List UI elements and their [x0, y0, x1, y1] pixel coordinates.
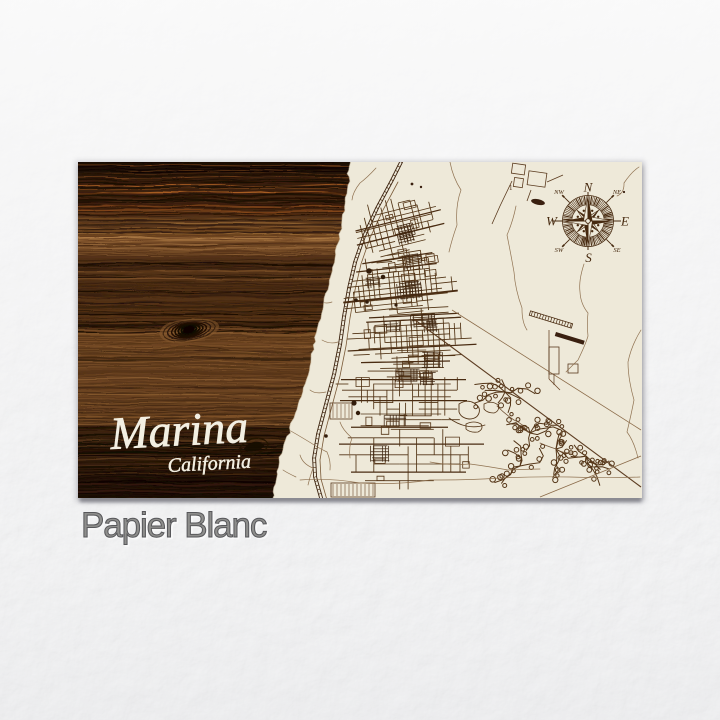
- svg-text:SW: SW: [555, 247, 564, 254]
- svg-text:E: E: [620, 214, 629, 229]
- svg-text:W: W: [546, 214, 558, 229]
- svg-text:NW: NW: [553, 189, 564, 196]
- svg-text:NE: NE: [612, 189, 621, 196]
- svg-text:Marina: Marina: [108, 401, 249, 459]
- svg-text:S: S: [585, 250, 592, 265]
- svg-text:1: 1: [509, 184, 513, 192]
- svg-text:Papier Blanc: Papier Blanc: [81, 506, 267, 545]
- svg-text:SE: SE: [613, 247, 620, 254]
- svg-text:California: California: [167, 451, 251, 477]
- svg-text:N: N: [583, 180, 594, 195]
